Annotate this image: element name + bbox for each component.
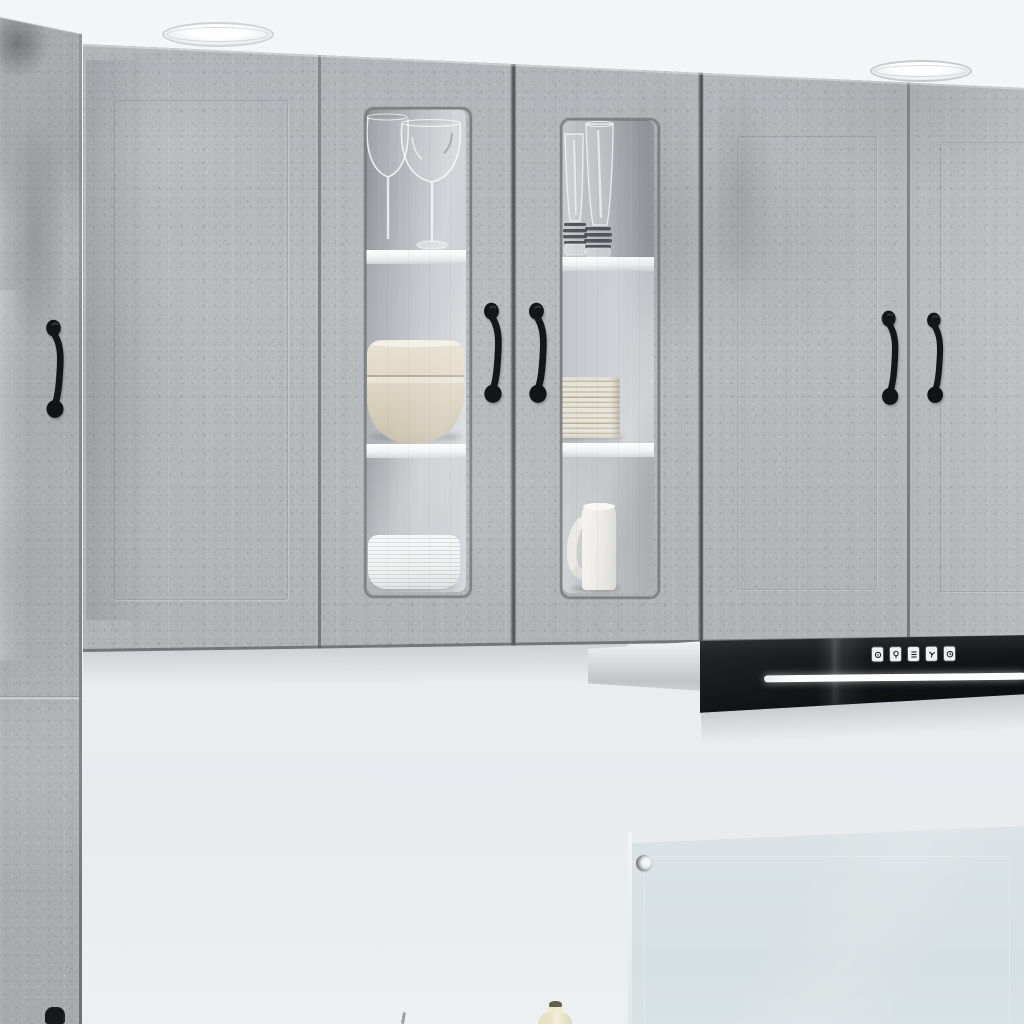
glass-backsplash bbox=[628, 826, 1024, 1024]
door-handle bbox=[527, 302, 553, 404]
hood-controls bbox=[872, 647, 955, 662]
ceiling-light-left bbox=[162, 22, 274, 47]
door-gap bbox=[510, 57, 517, 649]
glass-door-2-window bbox=[560, 118, 660, 599]
backsplash-edge bbox=[628, 832, 632, 1024]
pantry-top-edge bbox=[0, 16, 83, 35]
backsplash-screw bbox=[636, 855, 652, 871]
hood-fan-low-button bbox=[908, 647, 919, 661]
hood-fan-high-button bbox=[926, 647, 937, 661]
glass-door-1-window bbox=[364, 107, 472, 598]
door-handle bbox=[482, 302, 508, 404]
door-panel-routing bbox=[737, 136, 877, 590]
pantry-handle bbox=[45, 313, 69, 425]
ceiling-light-right bbox=[870, 60, 972, 82]
utensil-tip bbox=[401, 1012, 406, 1024]
door-panel-routing bbox=[114, 100, 288, 600]
pantry-right-seam bbox=[79, 17, 82, 1024]
door-handle bbox=[925, 312, 949, 404]
door-panel-routing bbox=[940, 142, 1024, 592]
ceiling-light-ring bbox=[875, 65, 967, 77]
pantry-horizontal-seam bbox=[0, 696, 82, 700]
ceiling-light-ring bbox=[167, 27, 269, 42]
door-gap bbox=[698, 66, 704, 648]
upper-cabinet-run bbox=[0, 0, 1024, 662]
door-seam bbox=[318, 48, 321, 650]
concrete-light-streak bbox=[0, 290, 26, 660]
hood-timer-button bbox=[944, 647, 955, 661]
hood-power-button bbox=[872, 647, 883, 661]
door-seam bbox=[907, 80, 910, 642]
door-handle bbox=[880, 310, 904, 406]
oil-bottle bbox=[538, 1001, 572, 1024]
oil-bottle-body bbox=[538, 1012, 572, 1024]
tall-pantry-unit bbox=[0, 0, 82, 1024]
pantry-lower-handle bbox=[45, 1007, 65, 1024]
backsplash-sheen bbox=[628, 826, 1024, 1024]
kitchen-photo bbox=[0, 0, 1024, 1024]
concrete-dark-patch bbox=[0, 8, 50, 78]
hood-light-button bbox=[890, 647, 901, 661]
